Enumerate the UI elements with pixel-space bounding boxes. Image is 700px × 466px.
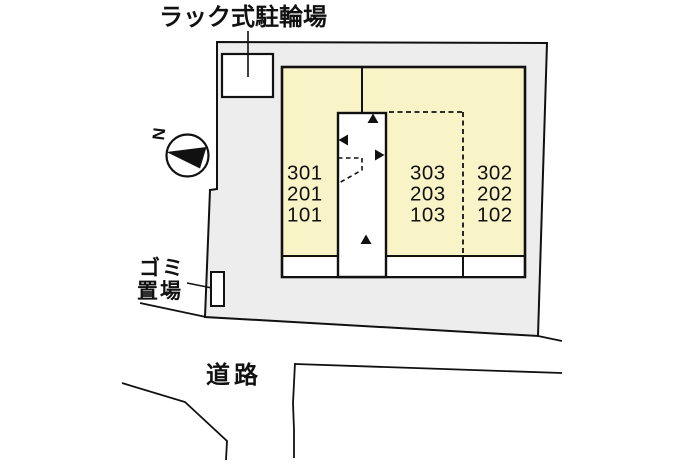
garbage-box <box>211 272 224 306</box>
road-edge-left <box>122 383 227 460</box>
boundary-extension-left <box>140 303 206 317</box>
unit-number-302: 302 <box>477 162 513 185</box>
unit-number-101: 101 <box>287 204 323 227</box>
unit-number-303: 303 <box>410 162 446 185</box>
site-plan-canvas: N ラック式駐輪場 ゴミ 置場 道路 301 201 101 303 203 1… <box>0 0 700 466</box>
unit-number-203: 203 <box>410 183 446 206</box>
site-plan-drawing: N ラック式駐輪場 ゴミ 置場 道路 301 201 101 303 203 1… <box>0 0 700 466</box>
unit-number-103: 103 <box>410 204 446 227</box>
garbage-label-line2: 置場 <box>137 280 183 303</box>
road-edge-corner-vertical <box>293 363 295 458</box>
unit-number-202: 202 <box>477 183 513 206</box>
bike-parking-label: ラック式駐輪場 <box>159 3 327 31</box>
north-label: N <box>148 127 168 142</box>
road-edge-corner-horizontal <box>295 364 562 373</box>
garbage-label-line1: ゴミ <box>139 256 185 280</box>
unit-number-102: 102 <box>477 204 513 227</box>
balcony-strip <box>284 258 524 277</box>
road-label: 道路 <box>206 361 262 389</box>
unit-number-301: 301 <box>287 162 323 185</box>
unit-number-201: 201 <box>287 183 323 206</box>
boundary-extension-right <box>538 336 562 341</box>
